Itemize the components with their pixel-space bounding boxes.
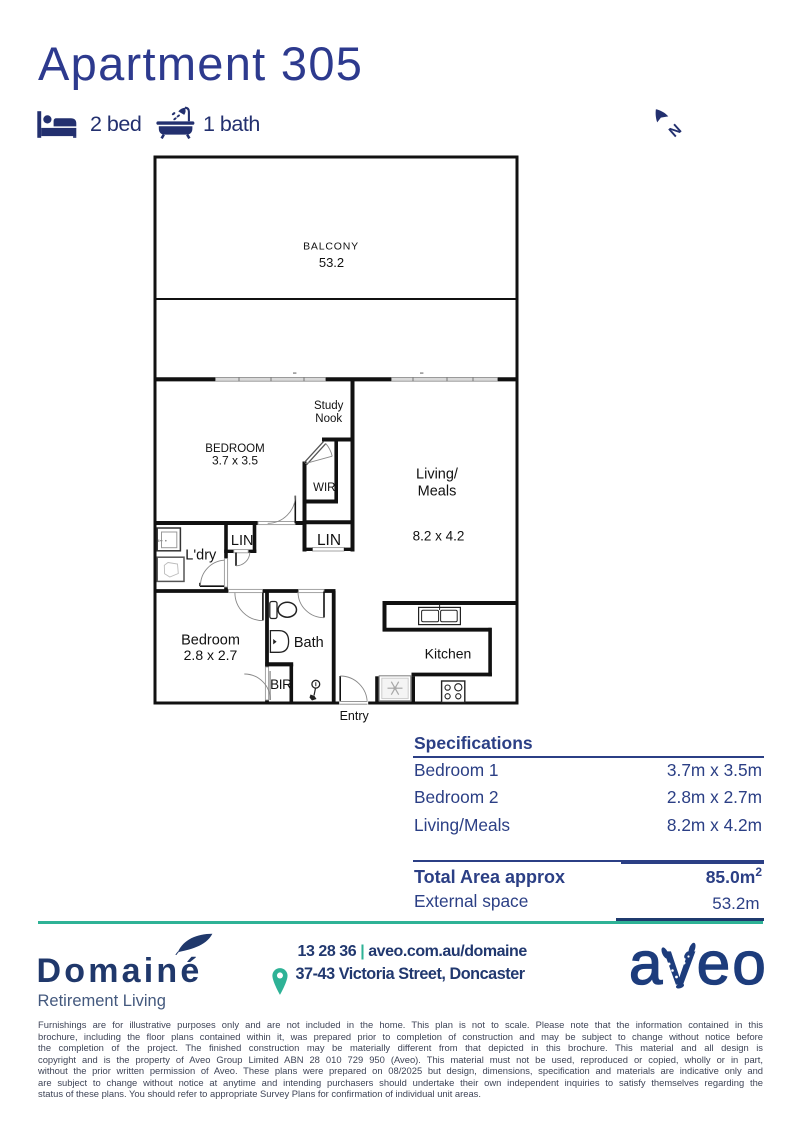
svg-text:Living/: Living/ bbox=[416, 467, 459, 483]
svg-text:LIN: LIN bbox=[317, 532, 341, 549]
svg-text:Study: Study bbox=[314, 400, 344, 412]
svg-text:BIR: BIR bbox=[270, 677, 292, 692]
svg-text:Meals: Meals bbox=[418, 484, 457, 500]
svg-text:Bath: Bath bbox=[294, 635, 324, 651]
svg-text:Kitchen: Kitchen bbox=[425, 646, 472, 662]
svg-text:N: N bbox=[666, 121, 685, 141]
svg-text:WIR: WIR bbox=[313, 482, 335, 494]
svg-text:Nook: Nook bbox=[315, 413, 342, 425]
svg-text:3.7 x 3.5: 3.7 x 3.5 bbox=[212, 453, 258, 467]
svg-text:Entry: Entry bbox=[340, 709, 370, 723]
svg-text:L'dry: L'dry bbox=[185, 548, 217, 564]
svg-text:Bedroom: Bedroom bbox=[181, 632, 240, 648]
svg-text:8.2 x 4.2: 8.2 x 4.2 bbox=[413, 529, 465, 544]
svg-text:LIN: LIN bbox=[231, 533, 254, 549]
svg-text:BALCONY: BALCONY bbox=[303, 241, 359, 253]
svg-text:53.2: 53.2 bbox=[319, 255, 344, 270]
svg-text:2.8 x 2.7: 2.8 x 2.7 bbox=[184, 647, 238, 663]
